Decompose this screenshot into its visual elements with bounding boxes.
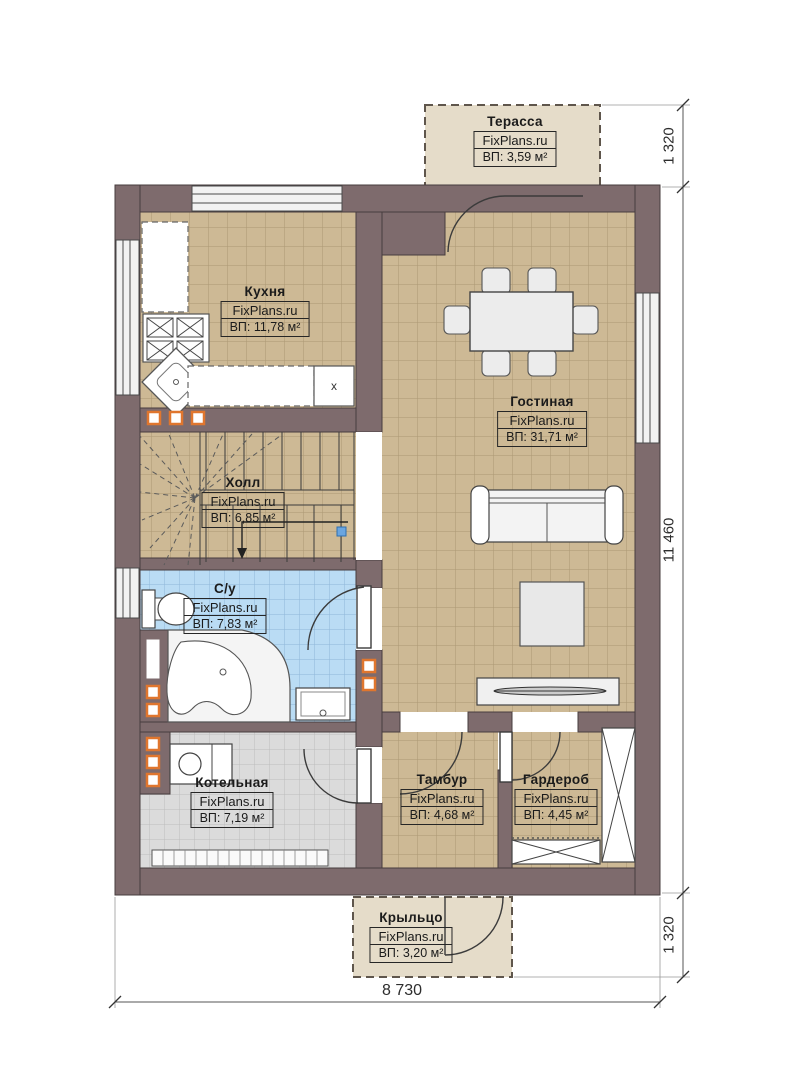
- dimension-right-middle: 11 460: [661, 518, 678, 563]
- brand-watermark: FixPlans.ru: [498, 412, 586, 429]
- wall-bottom: [115, 868, 660, 895]
- living-room-info-box: FixPlans.ru ВП: 31,71 м²: [497, 411, 587, 447]
- wall-living-vestibule-b: [468, 712, 512, 732]
- vanity-sink: [296, 688, 350, 720]
- wardrobe-name: Гардероб: [514, 772, 597, 787]
- wall-right: [635, 185, 660, 895]
- terrace-info-box: FixPlans.ru ВП: 3,59 м²: [473, 131, 556, 167]
- vent-duct-icon: [147, 686, 159, 698]
- bathroom-area: ВП: 7,83 м²: [184, 616, 265, 633]
- vent-shaft: [147, 640, 159, 678]
- window-left-bathroom: [116, 568, 139, 618]
- floor-plan-page: Терасса FixPlans.ru ВП: 3,59 м² Кухня Fi…: [0, 0, 792, 1080]
- living-room-label: Гостиная FixPlans.ru ВП: 31,71 м²: [497, 394, 587, 447]
- porch-name: Крыльцо: [369, 910, 452, 925]
- brand-watermark: FixPlans.ru: [515, 790, 596, 807]
- vent-duct-icon: [147, 738, 159, 750]
- porch-label: Крыльцо FixPlans.ru ВП: 3,20 м²: [369, 910, 452, 963]
- brand-watermark: FixPlans.ru: [370, 928, 451, 945]
- dimension-right-top: 1 320: [661, 127, 678, 165]
- wall-hall-bath: [140, 558, 356, 570]
- handrail-marker: [337, 527, 346, 536]
- hall-info-box: FixPlans.ru ВП: 6,85 м²: [201, 492, 284, 528]
- porch-info-box: FixPlans.ru ВП: 3,20 м²: [369, 927, 452, 963]
- hall-area: ВП: 6,85 м²: [202, 510, 283, 527]
- terrace-name: Терасса: [473, 114, 556, 129]
- kitchen-counter-bottom: [188, 366, 314, 406]
- brand-watermark: FixPlans.ru: [401, 790, 482, 807]
- boiler-room-info-box: FixPlans.ru ВП: 7,19 м²: [190, 792, 273, 828]
- living-room-area: ВП: 31,71 м²: [498, 429, 586, 446]
- boiler-room-name: Котельная: [190, 775, 273, 790]
- porch-area: ВП: 3,20 м²: [370, 945, 451, 962]
- window-top-kitchen: [192, 186, 342, 211]
- wardrobe-area: ВП: 4,45 м²: [515, 807, 596, 824]
- wall-kitchen-living: [356, 212, 382, 432]
- terrace-area: ВП: 3,59 м²: [474, 149, 555, 166]
- hall-name: Холл: [201, 475, 284, 490]
- window-right-living: [636, 293, 659, 443]
- wall-bath-living-top: [356, 560, 382, 588]
- kitchen-label: Кухня FixPlans.ru ВП: 11,78 м²: [221, 284, 310, 337]
- dining-table: [470, 292, 573, 351]
- brand-watermark: FixPlans.ru: [191, 793, 272, 810]
- terrace-label: Терасса FixPlans.ru ВП: 3,59 м²: [473, 114, 556, 167]
- vestibule-label: Тамбур FixPlans.ru ВП: 4,68 м²: [400, 772, 483, 825]
- boiler-room-label: Котельная FixPlans.ru ВП: 7,19 м²: [190, 775, 273, 828]
- bathtub: [167, 630, 290, 722]
- vestibule-area: ВП: 4,68 м²: [401, 807, 482, 824]
- brand-watermark: FixPlans.ru: [202, 493, 283, 510]
- vestibule-name: Тамбур: [400, 772, 483, 787]
- vestibule-info-box: FixPlans.ru ВП: 4,68 м²: [400, 789, 483, 825]
- dimension-right-bottom: 1 320: [661, 916, 678, 954]
- wall-vestibule-wardrobe: [498, 770, 512, 868]
- radiator: [152, 850, 328, 866]
- wall-boiler-vestibule: [356, 803, 382, 868]
- bathroom-info-box: FixPlans.ru ВП: 7,83 м²: [183, 598, 266, 634]
- vent-duct-icon: [147, 704, 159, 716]
- kitchen-info-box: FixPlans.ru ВП: 11,78 м²: [221, 301, 310, 337]
- bathroom-label: С/у FixPlans.ru ВП: 7,83 м²: [183, 581, 266, 634]
- dimension-bottom-width: 8 730: [382, 982, 422, 1000]
- bathroom-name: С/у: [183, 581, 266, 596]
- kitchen-area: ВП: 11,78 м²: [222, 319, 309, 336]
- kitchen-counter-left: [142, 222, 188, 312]
- vent-duct-icon: [170, 412, 182, 424]
- wall-living-vestibule-a: [382, 712, 400, 732]
- wall-bath-boiler: [140, 722, 356, 732]
- vent-duct-icon: [148, 412, 160, 424]
- hall-living-passage: [356, 432, 382, 560]
- wardrobe-label: Гардероб FixPlans.ru ВП: 4,45 м²: [514, 772, 597, 825]
- vent-duct-icon: [192, 412, 204, 424]
- wall-pier-living: [382, 212, 445, 255]
- appliance-mark: x: [331, 379, 337, 393]
- vent-duct-icon: [147, 774, 159, 786]
- coffee-table: [520, 582, 584, 646]
- sofa: [471, 486, 623, 544]
- window-left-kitchen: [116, 240, 139, 395]
- wardrobe-cabinet-bottom: [512, 838, 600, 864]
- vent-duct-icon: [147, 756, 159, 768]
- brand-watermark: FixPlans.ru: [184, 599, 265, 616]
- tv-stand: [477, 678, 619, 705]
- hall-label: Холл FixPlans.ru ВП: 6,85 м²: [201, 475, 284, 528]
- brand-watermark: FixPlans.ru: [474, 132, 555, 149]
- kitchen-name: Кухня: [221, 284, 310, 299]
- brand-watermark: FixPlans.ru: [222, 302, 309, 319]
- wardrobe-cabinet-right: [602, 728, 635, 862]
- vent-duct-icon: [363, 678, 375, 690]
- living-room-name: Гостиная: [497, 394, 587, 409]
- wardrobe-info-box: FixPlans.ru ВП: 4,45 м²: [514, 789, 597, 825]
- vent-duct-icon: [363, 660, 375, 672]
- boiler-room-area: ВП: 7,19 м²: [191, 810, 272, 827]
